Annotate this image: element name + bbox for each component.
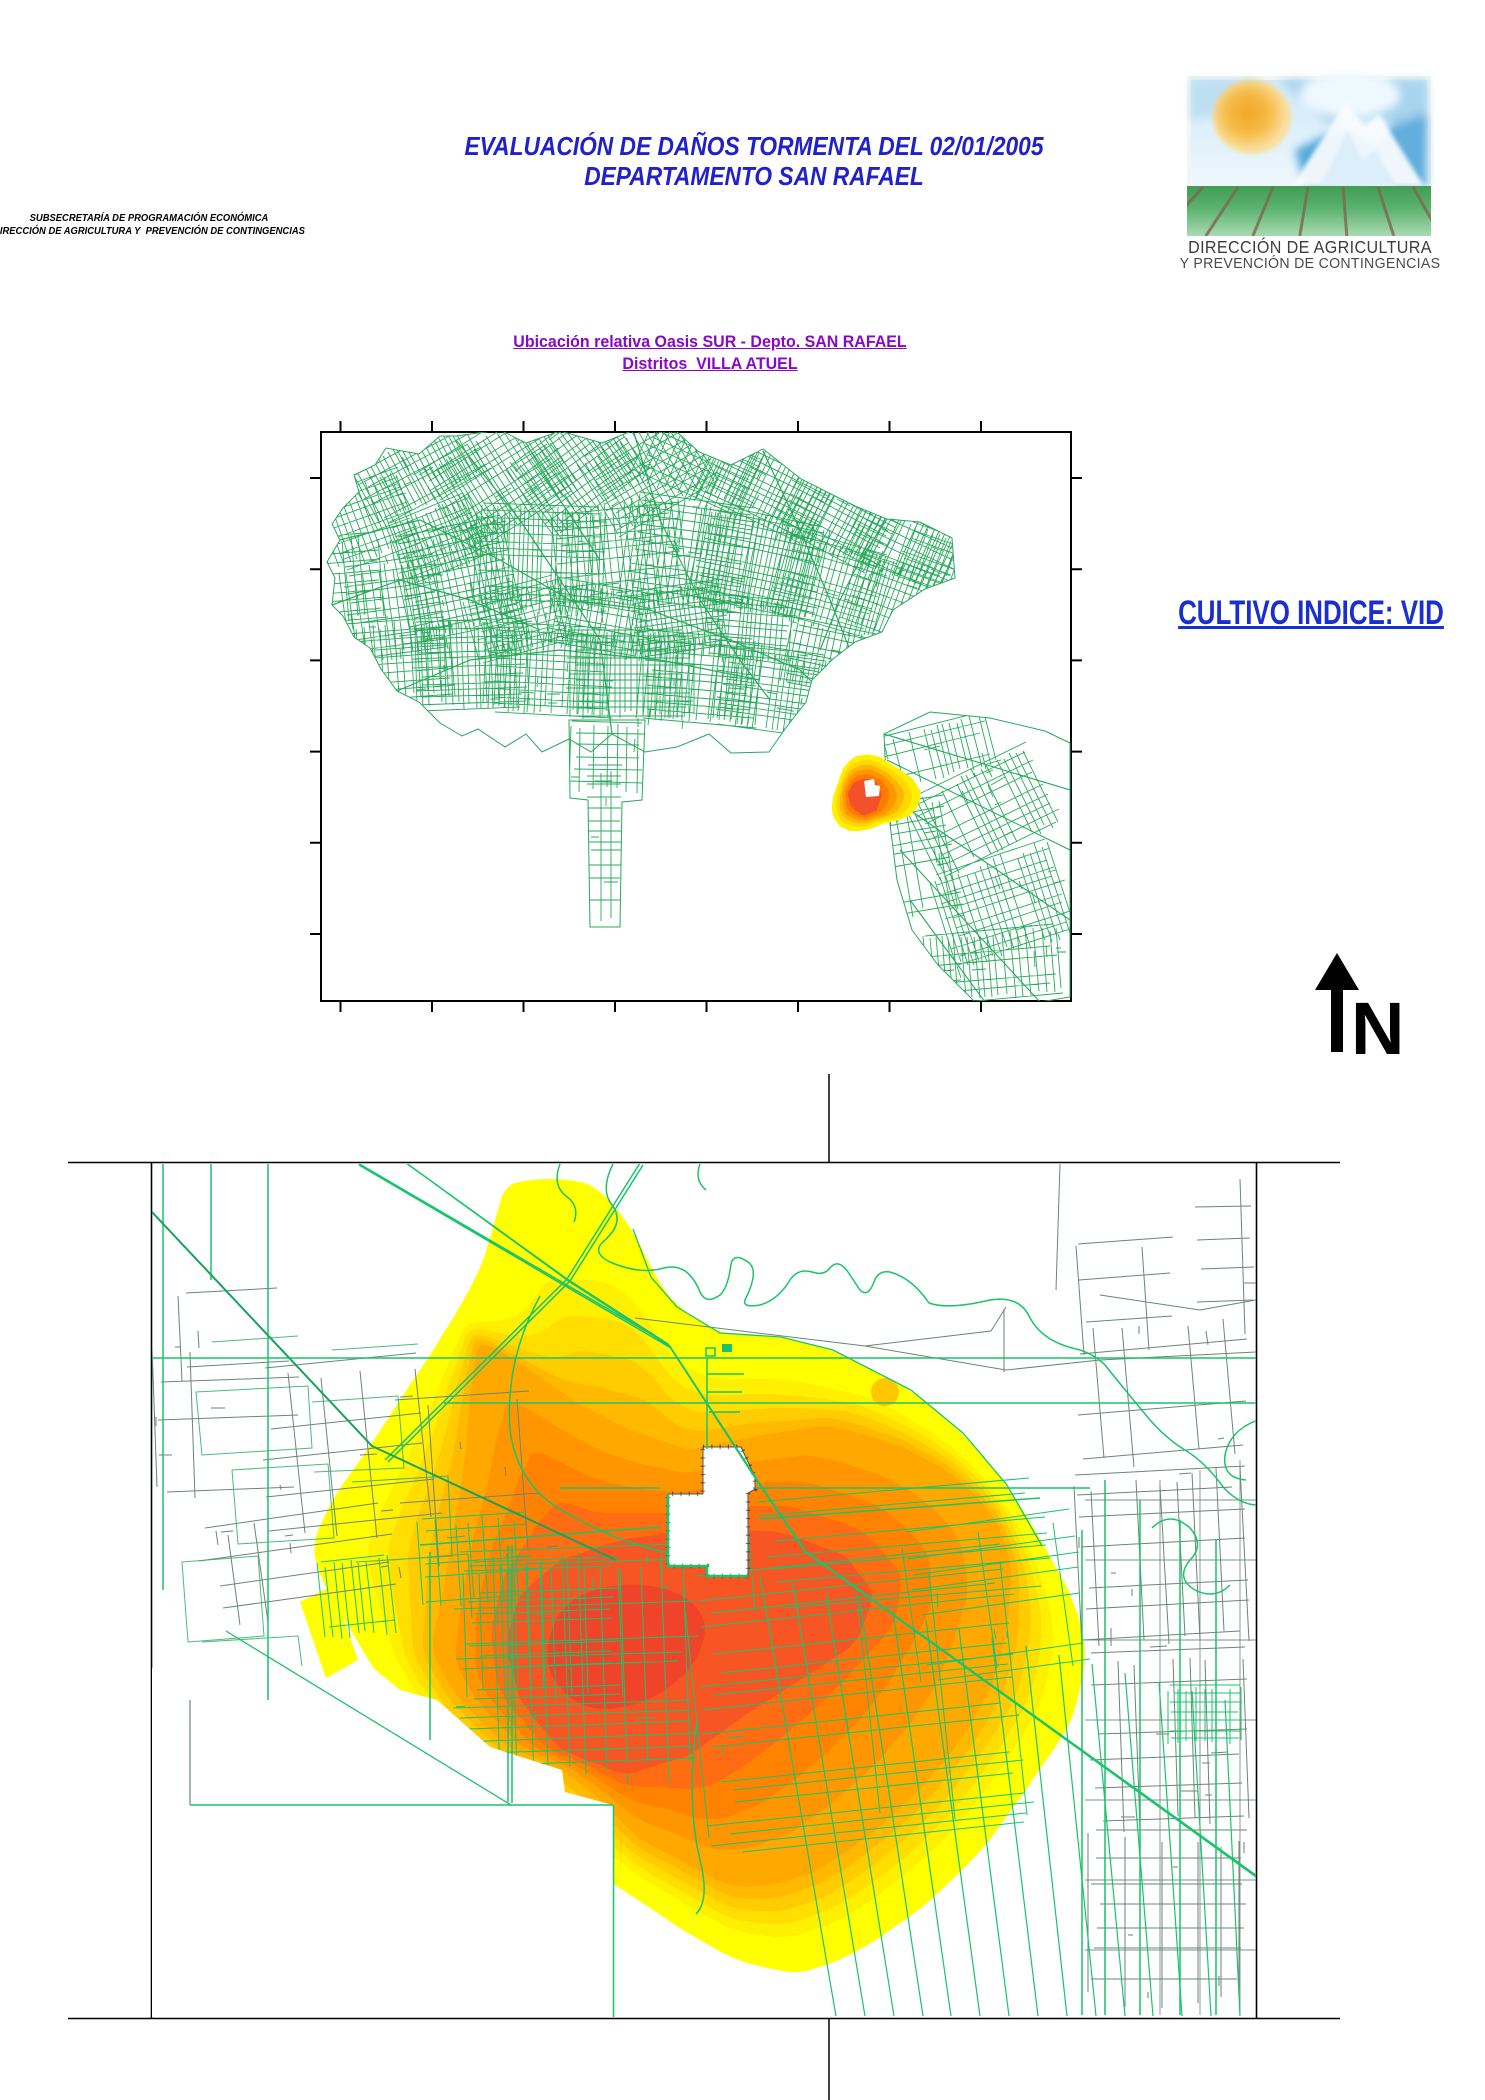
svg-text:N: N (1351, 987, 1404, 1070)
